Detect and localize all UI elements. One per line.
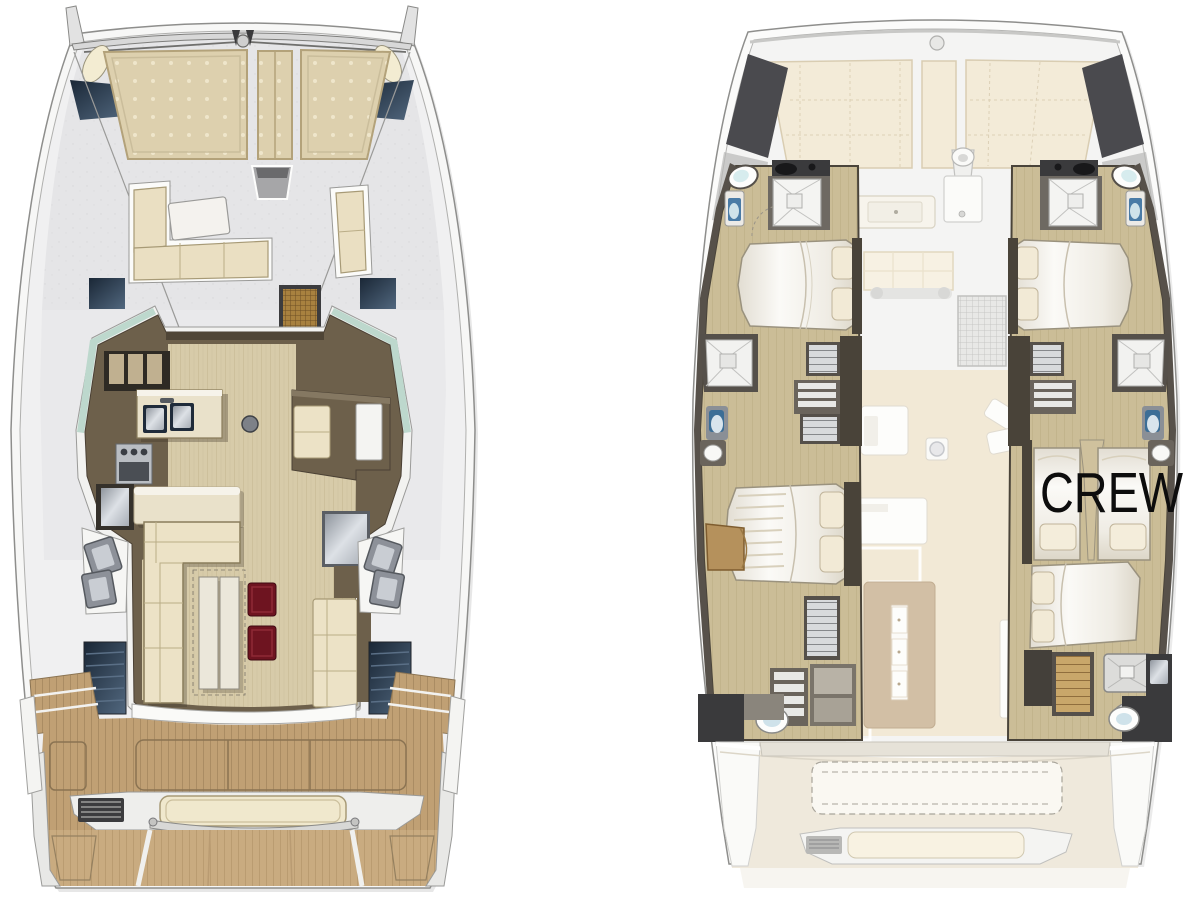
svg-text:CREW: CREW (1040, 461, 1183, 525)
